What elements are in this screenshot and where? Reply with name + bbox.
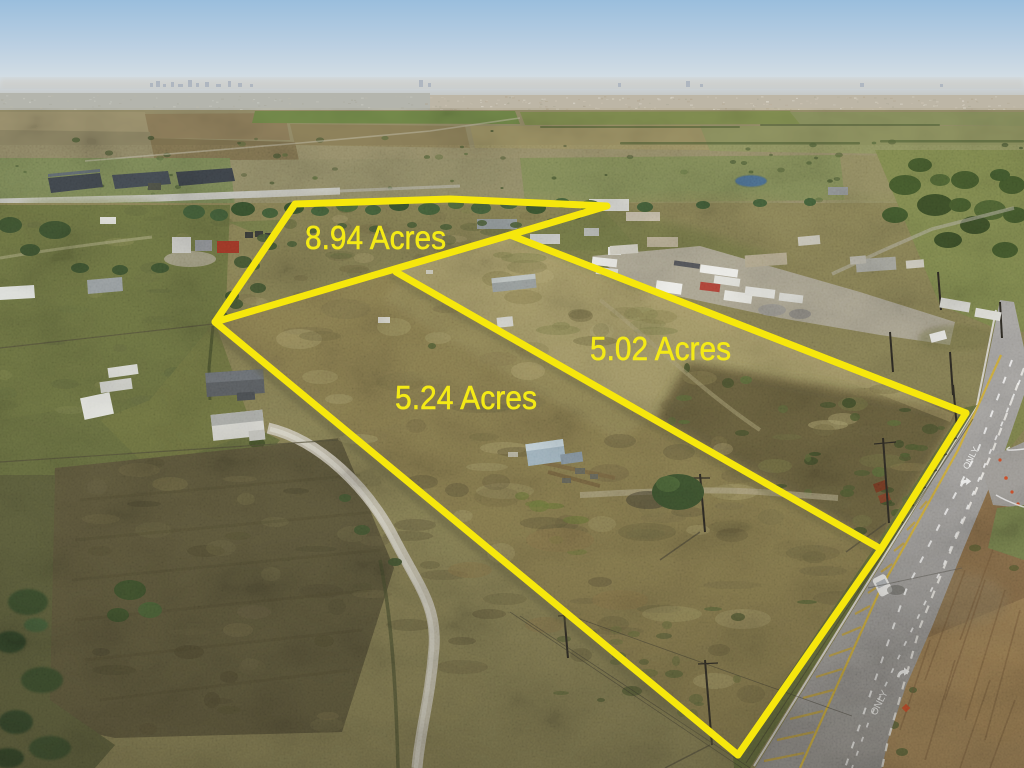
svg-text:5.02 Acres: 5.02 Acres: [590, 330, 731, 367]
svg-text:8.94 Acres: 8.94 Acres: [305, 219, 446, 256]
svg-text:5.24 Acres: 5.24 Acres: [395, 379, 537, 416]
